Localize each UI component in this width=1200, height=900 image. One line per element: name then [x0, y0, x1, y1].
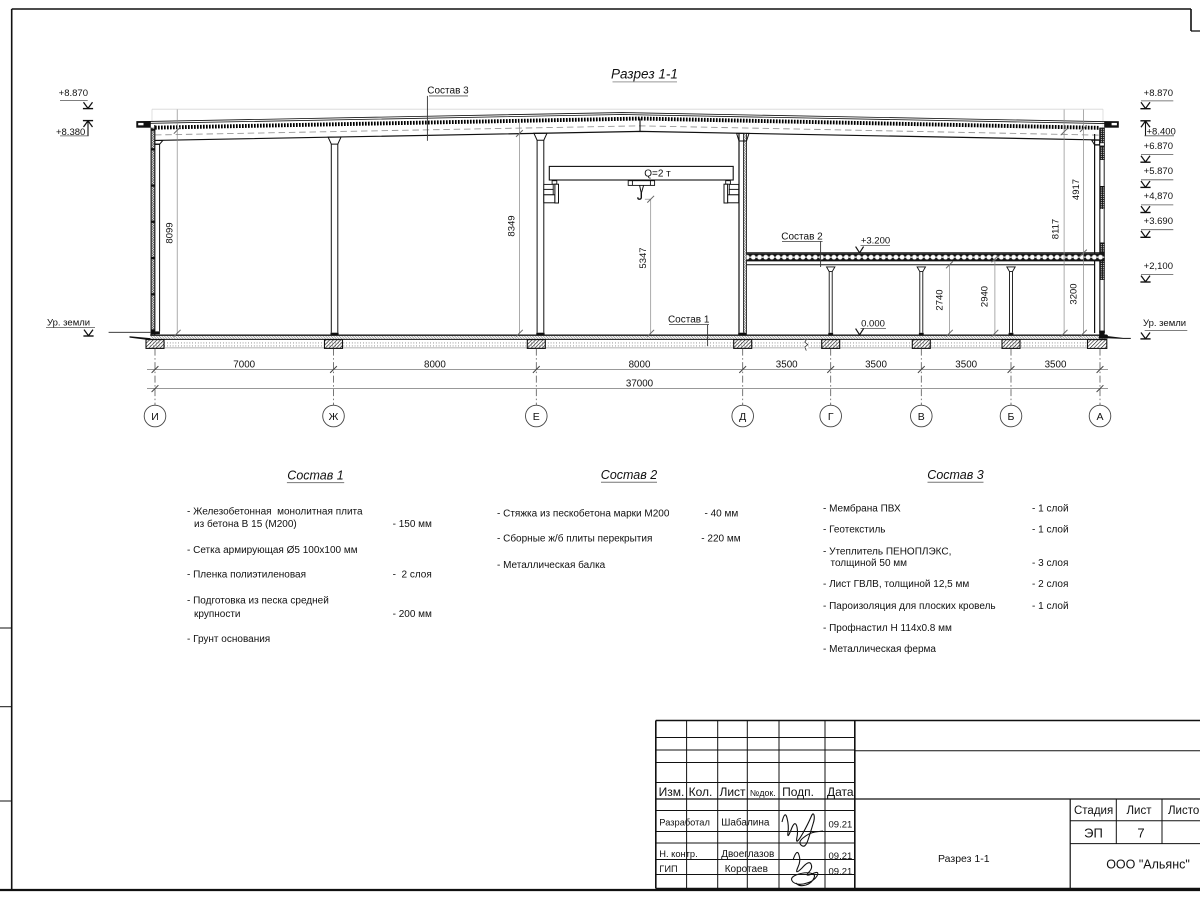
svg-text:Д: Д	[739, 411, 746, 423]
svg-text:Подп.: Подп.	[782, 785, 814, 799]
svg-text:Состав 1: Состав 1	[668, 314, 710, 325]
svg-text:0.000: 0.000	[861, 318, 885, 329]
svg-text:Ур. земли: Ур. земли	[47, 317, 90, 328]
svg-text:- Пленка полиэтиленовая: - Пленка полиэтиленовая	[187, 570, 306, 581]
svg-text:Лист: Лист	[719, 785, 746, 799]
svg-text:37000: 37000	[626, 378, 654, 389]
svg-text:Q=2 т: Q=2 т	[644, 169, 671, 180]
svg-text:3500: 3500	[865, 359, 887, 370]
svg-text:3200: 3200	[1069, 283, 1080, 304]
svg-text:8000: 8000	[424, 359, 446, 370]
svg-text:2940: 2940	[980, 286, 991, 307]
svg-text:+2,100: +2,100	[1144, 261, 1173, 272]
svg-text:Г: Г	[828, 411, 834, 423]
svg-text:+8.380: +8.380	[56, 127, 85, 138]
svg-text:Разрез 1-1: Разрез 1-1	[611, 66, 678, 81]
svg-text:- 2 слоя: - 2 слоя	[393, 570, 432, 581]
svg-text:ГИП: ГИП	[659, 864, 677, 874]
svg-text:- 2 слоя: - 2 слоя	[1032, 579, 1068, 590]
svg-text:- Стяжка из пескобетона марки: - Стяжка из пескобетона марки М200	[497, 508, 670, 520]
svg-text:- Утеплитель ПЕНОПЛЭКС,: - Утеплитель ПЕНОПЛЭКС,	[823, 547, 951, 558]
svg-text:8349: 8349	[507, 215, 518, 236]
svg-text:- 220 мм: - 220 мм	[701, 533, 740, 544]
svg-text:Лист: Лист	[1127, 805, 1153, 817]
svg-text:толщиной 50 мм: толщиной 50 мм	[831, 558, 908, 569]
svg-text:8117: 8117	[1051, 219, 1062, 239]
svg-text:А: А	[1096, 411, 1103, 423]
svg-text:Дата: Дата	[827, 785, 854, 799]
svg-text:- Грунт основания: - Грунт основания	[187, 634, 270, 645]
svg-text:09.21: 09.21	[829, 866, 853, 877]
svg-text:Е: Е	[533, 411, 540, 423]
svg-text:- Мембрана ПВХ: - Мембрана ПВХ	[823, 502, 901, 514]
svg-text:№док.: №док.	[750, 788, 776, 798]
svg-text:из бетона В 15 (М200): из бетона В 15 (М200)	[194, 518, 297, 530]
svg-text:ЭП: ЭП	[1084, 826, 1103, 841]
svg-text:8099: 8099	[165, 222, 176, 243]
svg-text:+6.870: +6.870	[1144, 141, 1173, 152]
svg-text:- Профнастил Н 114х0.8 мм: - Профнастил Н 114х0.8 мм	[823, 622, 952, 634]
svg-text:+8.870: +8.870	[59, 88, 88, 99]
svg-text:Изм.: Изм.	[659, 785, 685, 799]
svg-text:- Металлическая ферма: - Металлическая ферма	[823, 643, 936, 655]
svg-text:Шабалина: Шабалина	[721, 817, 770, 829]
svg-text:3500: 3500	[776, 359, 798, 370]
svg-text:8000: 8000	[629, 359, 651, 370]
svg-text:Двоеглазов: Двоеглазов	[721, 849, 774, 860]
svg-text:3500: 3500	[955, 359, 977, 370]
svg-text:+8.870: +8.870	[1144, 88, 1173, 99]
svg-text:09.21: 09.21	[829, 819, 853, 830]
svg-text:3500: 3500	[1045, 359, 1067, 370]
svg-text:- Подготовка из песка средней: - Подготовка из песка средней	[187, 596, 329, 607]
svg-text:- Сборные ж/б плиты перекрытия: - Сборные ж/б плиты перекрытия	[497, 532, 652, 544]
svg-text:- Геотекстиль: - Геотекстиль	[823, 525, 886, 536]
svg-text:+5.870: +5.870	[1144, 166, 1173, 177]
svg-text:- 150 мм: - 150 мм	[393, 519, 432, 530]
svg-text:09.21: 09.21	[829, 851, 853, 862]
svg-text:Ж: Ж	[329, 411, 339, 423]
svg-text:- 1 слой: - 1 слой	[1032, 525, 1069, 536]
svg-text:Коротаев: Коротаев	[725, 864, 768, 875]
svg-text:7: 7	[1137, 826, 1144, 841]
svg-text:- Сетка армирующая Ø5 100х100: - Сетка армирующая Ø5 100х100 мм	[187, 545, 358, 556]
svg-text:Разрез 1-1: Разрез 1-1	[938, 853, 990, 865]
svg-text:Состав 3: Состав 3	[927, 468, 983, 482]
svg-text:Состав 2: Состав 2	[781, 231, 823, 242]
svg-text:ООО "Альянс": ООО "Альянс"	[1106, 858, 1190, 872]
svg-text:+4,870: +4,870	[1144, 191, 1173, 202]
svg-text:И: И	[151, 411, 159, 423]
svg-text:- Пароизоляция для плоских кро: - Пароизоляция для плоских кровель	[823, 601, 996, 612]
svg-text:крупности: крупности	[194, 609, 241, 620]
svg-text:Н. контр.: Н. контр.	[659, 849, 697, 859]
svg-text:- Железобетонная монолитная п: - Железобетонная монолитная плита	[187, 506, 363, 518]
svg-text:4917: 4917	[1071, 179, 1082, 200]
svg-text:Ур. земли: Ур. земли	[1143, 318, 1186, 329]
svg-text:+3.200: +3.200	[861, 236, 890, 247]
svg-text:- 200 мм: - 200 мм	[393, 609, 432, 620]
svg-text:- Металлическая балка: - Металлическая балка	[497, 559, 606, 571]
svg-text:Состав 1: Состав 1	[287, 468, 343, 482]
svg-text:+3.690: +3.690	[1144, 216, 1173, 227]
svg-text:Состав 2: Состав 2	[601, 468, 657, 482]
svg-text:Разработал: Разработал	[659, 818, 710, 828]
svg-text:5347: 5347	[638, 247, 649, 268]
svg-text:2740: 2740	[935, 289, 946, 310]
svg-text:Кол.: Кол.	[689, 785, 713, 799]
svg-text:Б: Б	[1008, 411, 1015, 423]
svg-text:В: В	[918, 411, 925, 423]
svg-text:- 40 мм: - 40 мм	[705, 509, 739, 520]
svg-text:Стадия: Стадия	[1074, 805, 1113, 817]
svg-text:Листов: Листов	[1168, 805, 1200, 817]
svg-text:7000: 7000	[233, 359, 255, 370]
svg-text:Состав 3: Состав 3	[427, 85, 469, 96]
svg-text:- Лист ГВЛВ, толщиной 12,5 мм: - Лист ГВЛВ, толщиной 12,5 мм	[823, 579, 969, 590]
svg-text:- 1 слой: - 1 слой	[1032, 503, 1069, 514]
svg-text:- 1 слой: - 1 слой	[1032, 601, 1069, 612]
svg-text:- 3 слоя: - 3 слоя	[1032, 558, 1068, 569]
